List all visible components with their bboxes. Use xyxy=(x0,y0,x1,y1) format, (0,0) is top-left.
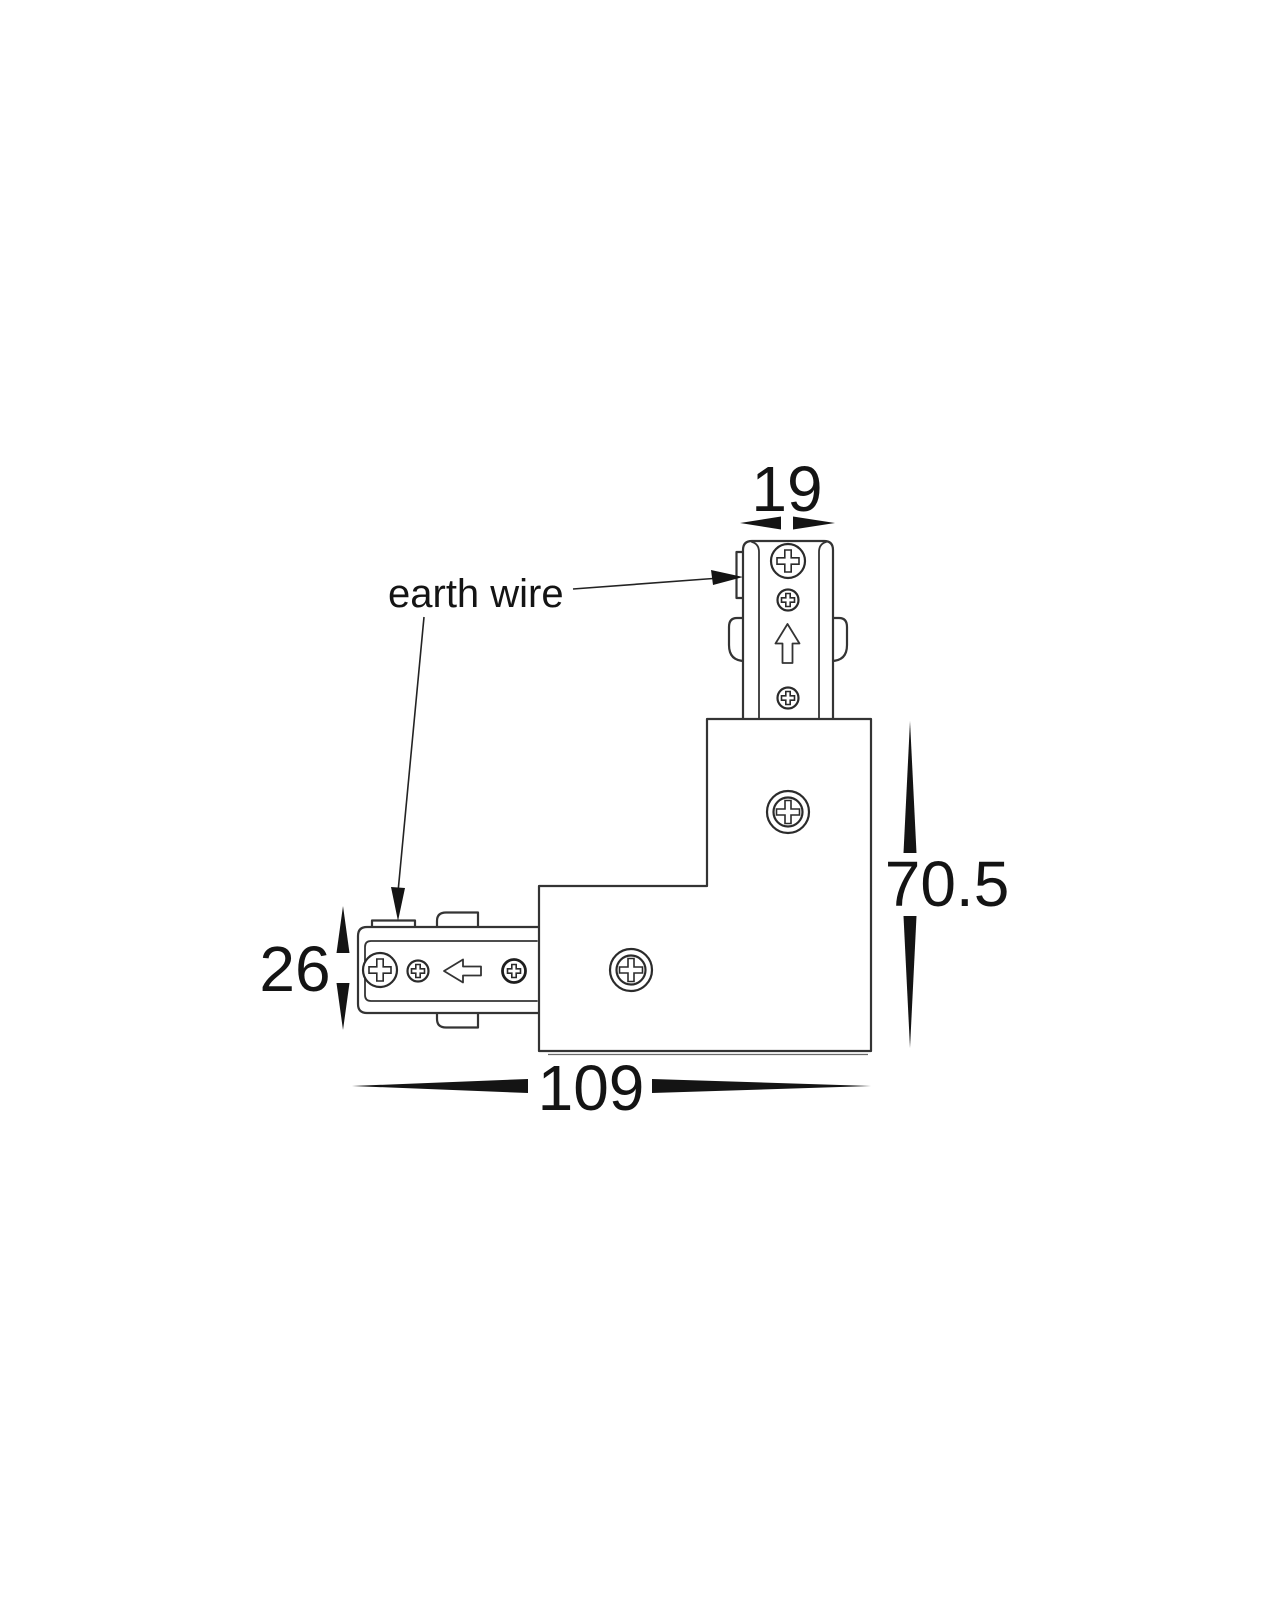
leader-line-top xyxy=(573,579,713,590)
phillips-screw-icon xyxy=(771,544,805,578)
phillips-screw-small-icon xyxy=(408,961,429,982)
dimension-arrow-icon xyxy=(904,721,917,853)
phillips-screw-large-icon xyxy=(767,791,809,833)
l-connector-diagram: earth wire 19 70.5 26 109 xyxy=(0,0,1280,1600)
dimension-arrow-icon xyxy=(904,916,917,1048)
dimension-stub-height: 26 xyxy=(259,906,349,1030)
dim-value-19: 19 xyxy=(751,453,822,525)
leader-line-left xyxy=(398,617,424,892)
dimension-body-height: 70.5 xyxy=(885,721,1010,1048)
phillips-screw-large-icon xyxy=(610,949,652,991)
dimension-arrow-icon xyxy=(337,906,350,953)
phillips-screw-small-icon xyxy=(503,960,526,983)
dimension-arrow-icon xyxy=(337,983,350,1030)
technical-drawing-page: earth wire 19 70.5 26 109 xyxy=(0,0,1280,1600)
dimension-arrow-icon xyxy=(352,1079,528,1093)
l-body-outline xyxy=(539,719,871,1051)
phillips-screw-small-icon xyxy=(778,590,799,611)
phillips-screw-small-icon xyxy=(778,688,799,709)
latch-tab-bottom-icon xyxy=(437,1012,478,1028)
dim-value-26: 26 xyxy=(259,933,330,1005)
top-track-stem xyxy=(729,541,847,722)
phillips-screw-icon xyxy=(363,953,397,987)
l-connector-body xyxy=(539,719,871,1055)
dim-value-70-5: 70.5 xyxy=(885,848,1010,920)
leader-arrow-icon xyxy=(391,887,405,921)
latch-tab-top-icon xyxy=(437,913,478,929)
dim-value-109: 109 xyxy=(538,1052,645,1124)
earth-wire-label: earth wire xyxy=(388,572,564,616)
earth-wire-annotation: earth wire xyxy=(388,570,743,921)
dimension-stem-width: 19 xyxy=(740,453,835,530)
left-track-stub xyxy=(358,913,540,1028)
dimension-overall-width: 109 xyxy=(352,1052,871,1124)
dimension-arrow-icon xyxy=(652,1079,871,1093)
